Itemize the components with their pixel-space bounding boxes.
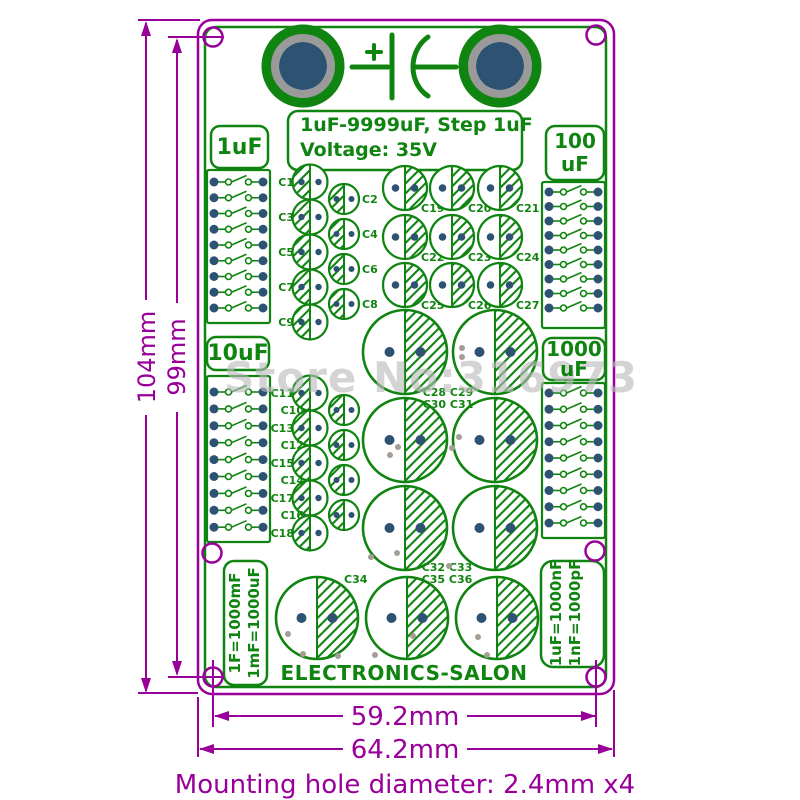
capacitor-pad xyxy=(349,442,355,448)
dim-width-outer: 64.2mm xyxy=(351,735,460,765)
formula-left-line1: 1F=1000mF xyxy=(226,567,245,679)
switch-lever xyxy=(567,287,582,294)
capacitor-hatch xyxy=(495,486,537,570)
capacitor-pad xyxy=(475,523,485,533)
formula-right-line2: 1nF=1000pF xyxy=(566,560,585,667)
aux-pad xyxy=(335,653,341,659)
capacitor-pad xyxy=(439,233,447,241)
switch-lever xyxy=(232,254,247,261)
capacitor-pad xyxy=(387,613,397,623)
capacitor-pad xyxy=(349,231,355,237)
switch-pad xyxy=(545,486,554,495)
capacitor-pad xyxy=(416,523,426,533)
capacitor-pad xyxy=(349,512,355,518)
switch-contact xyxy=(226,274,232,280)
section-label-100uf-value: 100 xyxy=(554,130,596,153)
switch-contact xyxy=(226,457,232,463)
switch-contact xyxy=(561,305,567,311)
cap-label: C13 xyxy=(271,422,294,435)
capacitor-pad xyxy=(334,266,340,272)
switch-contact xyxy=(226,258,232,264)
capacitor-pad xyxy=(349,477,355,483)
switch-pad xyxy=(259,178,268,187)
capacitor-hatch xyxy=(495,398,537,482)
switch-contact xyxy=(561,247,567,253)
switch-pad xyxy=(545,304,554,313)
mounting-hole xyxy=(586,542,605,561)
switch-lever xyxy=(567,229,582,236)
switch-pad xyxy=(210,489,219,498)
aux-pad xyxy=(449,445,455,451)
switch-pad xyxy=(594,202,603,211)
switch-pad xyxy=(545,275,554,284)
switch-contact xyxy=(561,204,567,210)
capacitor-hatch xyxy=(405,486,447,570)
switch-lever xyxy=(232,504,247,511)
switch-lever xyxy=(232,419,247,426)
switch-contact xyxy=(226,423,232,429)
switch-contact xyxy=(226,242,232,248)
switch-pad xyxy=(594,421,603,430)
switch-contact xyxy=(561,406,567,412)
switch-pad xyxy=(545,405,554,414)
switch-contact xyxy=(226,406,232,412)
switch-contact xyxy=(246,440,252,446)
aux-pad xyxy=(446,563,452,569)
capacitor-pad xyxy=(315,179,321,185)
switch-contact xyxy=(581,423,587,429)
capacitor-pad xyxy=(315,530,321,536)
aux-pad xyxy=(410,633,416,639)
section-label-1000uf-value: 1000 xyxy=(546,339,602,359)
capacitor-pad xyxy=(298,530,304,536)
switch-pad xyxy=(259,225,268,234)
capacitor-pad xyxy=(418,613,428,623)
switch-lever xyxy=(567,215,582,222)
switch-contact xyxy=(561,423,567,429)
capacitor-pad xyxy=(392,281,400,289)
aux-pad xyxy=(394,550,400,556)
switch-contact xyxy=(226,440,232,446)
title-line1: 1uF-9999uF, Step 1uF xyxy=(300,114,533,136)
capacitor-pad xyxy=(458,184,466,192)
dim-width-inner: 59.2mm xyxy=(351,702,460,732)
switch-pad xyxy=(259,421,268,430)
switch-lever xyxy=(567,186,582,193)
switch-lever xyxy=(232,223,247,230)
mounting-hole xyxy=(587,26,606,45)
capacitor-pad xyxy=(298,425,304,431)
capacitor-pad xyxy=(349,196,355,202)
switch-pad xyxy=(210,523,219,532)
capacitor-pad xyxy=(334,231,340,237)
cap-label: C5 xyxy=(278,246,294,259)
capacitor-pad xyxy=(297,613,307,623)
switch-contact xyxy=(246,179,252,185)
mounting-hole-caption: Mounting hole diameter: 2.4mm x4 xyxy=(175,770,635,800)
capacitor-pad xyxy=(315,319,321,325)
switch-contact xyxy=(581,247,587,253)
cap-label: C17 xyxy=(271,492,294,505)
capacitor-pad xyxy=(385,435,395,445)
capacitor-pad xyxy=(349,266,355,272)
section-label-100uf-unit: uF xyxy=(561,153,589,176)
cap-label: C27 xyxy=(516,299,539,312)
switch-pad xyxy=(210,404,219,413)
switch-pad xyxy=(545,519,554,528)
switch-contact xyxy=(246,242,252,248)
capacitor-pad xyxy=(328,613,338,623)
switch-pad xyxy=(594,217,603,226)
capacitor-pad xyxy=(411,184,419,192)
switch-contact xyxy=(581,488,587,494)
switch-contact xyxy=(581,305,587,311)
capacitor-pad xyxy=(315,425,321,431)
capacitor-pad xyxy=(334,301,340,307)
switch-pad xyxy=(259,455,268,464)
switch-lever xyxy=(567,419,582,426)
capacitor-pad xyxy=(392,184,400,192)
capacitor-pad xyxy=(475,435,485,445)
aux-pad xyxy=(387,452,393,458)
switch-pad xyxy=(259,506,268,515)
switch-contact xyxy=(246,258,252,264)
switch-pad xyxy=(210,225,219,234)
cap-label: C21 xyxy=(516,202,539,215)
capacitor-pad xyxy=(349,301,355,307)
cap-label: C8 xyxy=(362,298,378,311)
aux-pad xyxy=(484,652,490,658)
capacitor-pad xyxy=(315,460,321,466)
switch-lever xyxy=(232,270,247,277)
cap-label: C6 xyxy=(362,263,378,276)
switch-pad xyxy=(594,405,603,414)
switch-lever xyxy=(567,500,582,507)
switch-contact xyxy=(226,289,232,295)
switch-lever xyxy=(232,402,247,409)
capacitor-pad xyxy=(477,613,487,623)
section-label-10uf: 10uF xyxy=(207,337,269,370)
switch-lever xyxy=(567,244,582,251)
switch-lever xyxy=(567,517,582,524)
capacitor-pad xyxy=(298,495,304,501)
switch-lever xyxy=(232,207,247,214)
switch-pad xyxy=(259,256,268,265)
switch-lever xyxy=(232,453,247,460)
switch-contact xyxy=(581,504,587,510)
aux-pad xyxy=(395,444,401,450)
switch-contact xyxy=(246,211,252,217)
switch-pad xyxy=(210,421,219,430)
capacitor-pad xyxy=(439,184,447,192)
switch-pad xyxy=(210,506,219,515)
switch-pad xyxy=(210,209,219,218)
switch-lever xyxy=(232,286,247,293)
aux-pad xyxy=(475,634,481,640)
switch-pad xyxy=(259,404,268,413)
capacitor-pad xyxy=(334,477,340,483)
switch-lever xyxy=(232,470,247,477)
cap-label: C24 xyxy=(516,251,540,264)
switch-contact xyxy=(581,218,587,224)
switch-lever xyxy=(567,302,582,309)
capacitor-pad xyxy=(416,435,426,445)
switch-pad xyxy=(594,231,603,240)
capacitor-pad xyxy=(458,233,466,241)
section-label-100uf: 100 uF xyxy=(546,126,604,180)
switch-pad xyxy=(259,288,268,297)
switch-contact xyxy=(226,305,232,311)
switch-pad xyxy=(545,502,554,511)
switch-pad xyxy=(545,454,554,463)
section-label-1000uf-unit: uF xyxy=(560,359,588,379)
switch-contact xyxy=(581,520,587,526)
switch-contact xyxy=(561,504,567,510)
capacitor-pad xyxy=(298,319,304,325)
aux-pad xyxy=(456,434,462,440)
switch-pad xyxy=(594,470,603,479)
capacitor-pad xyxy=(334,512,340,518)
capacitor-pad xyxy=(439,281,447,289)
switch-contact xyxy=(581,406,587,412)
switch-contact xyxy=(581,189,587,195)
switch-contact xyxy=(581,233,587,239)
switch-contact xyxy=(561,276,567,282)
capacitor-pad xyxy=(298,460,304,466)
switch-lever xyxy=(567,452,582,459)
switch-pad xyxy=(594,304,603,313)
switch-pad xyxy=(259,209,268,218)
switch-contact xyxy=(246,474,252,480)
switch-pad xyxy=(259,241,268,250)
capacitor-pad xyxy=(334,407,340,413)
switch-contact xyxy=(561,520,567,526)
capacitor-pad xyxy=(458,281,466,289)
capacitor-pad xyxy=(298,249,304,255)
switch-contact xyxy=(581,204,587,210)
capacitor-pad xyxy=(506,233,514,241)
brand-text: ELECTRONICS-SALON xyxy=(281,661,528,685)
switch-pad xyxy=(594,275,603,284)
cap-label: C7 xyxy=(278,281,294,294)
switch-pad xyxy=(259,272,268,281)
switch-pad xyxy=(545,437,554,446)
switch-lever xyxy=(567,403,582,410)
switch-contact xyxy=(246,507,252,513)
switch-pad xyxy=(545,188,554,197)
cap-label: C15 xyxy=(271,457,294,470)
switch-pad xyxy=(210,438,219,447)
switch-contact xyxy=(226,211,232,217)
switch-lever xyxy=(232,176,247,183)
formula-right-line1: 1uF=1000nF xyxy=(547,560,566,667)
switch-pad xyxy=(210,241,219,250)
title-line2: Voltage: 35V xyxy=(300,139,437,161)
switch-contact xyxy=(561,455,567,461)
aux-pad xyxy=(285,631,291,637)
cap-label: C2 xyxy=(362,193,378,206)
cap-label-group: C34 xyxy=(344,573,368,586)
product-image: C1C2C3C4C5C6C7C8C9C11C10C13C12C15C14C17C… xyxy=(0,0,800,800)
switch-contact xyxy=(226,195,232,201)
switch-contact xyxy=(561,262,567,268)
switch-contact xyxy=(246,406,252,412)
switch-pad xyxy=(210,178,219,187)
capacitor-pad xyxy=(506,435,516,445)
section-label-1000uf: 1000 uF xyxy=(543,338,605,380)
capacitor-pad xyxy=(298,179,304,185)
capacitor-pad xyxy=(298,284,304,290)
capacitor-pad xyxy=(385,523,395,533)
capacitor-pad xyxy=(349,407,355,413)
switch-pad xyxy=(594,289,603,298)
switch-contact xyxy=(226,179,232,185)
switch-lever xyxy=(232,436,247,443)
cap-label: C9 xyxy=(278,316,294,329)
switch-contact xyxy=(581,471,587,477)
switch-pad xyxy=(545,246,554,255)
switch-lever xyxy=(567,468,582,475)
switch-lever xyxy=(567,484,582,491)
capacitor-pad xyxy=(334,442,340,448)
switch-pad xyxy=(210,256,219,265)
switch-contact xyxy=(246,305,252,311)
switch-contact xyxy=(226,524,232,530)
switch-contact xyxy=(561,488,567,494)
switch-pad xyxy=(545,470,554,479)
cap-label: C4 xyxy=(362,228,378,241)
switch-contact xyxy=(561,439,567,445)
switch-pad xyxy=(545,421,554,430)
dim-height-outer: 104mm xyxy=(133,311,161,404)
aux-pad xyxy=(300,651,306,657)
switch-pad xyxy=(545,202,554,211)
switch-lever xyxy=(232,521,247,528)
switch-pad xyxy=(545,260,554,269)
capacitor-pad xyxy=(508,613,518,623)
switch-lever xyxy=(567,200,582,207)
capacitor-pad xyxy=(506,281,514,289)
switch-contact xyxy=(226,490,232,496)
switch-contact xyxy=(561,291,567,297)
switch-pad xyxy=(210,455,219,464)
switch-contact xyxy=(561,471,567,477)
capacitor-symbol-icon xyxy=(352,35,456,98)
cap-label: C1 xyxy=(278,176,294,189)
switch-pad xyxy=(210,272,219,281)
switch-contact xyxy=(581,262,587,268)
switch-lever xyxy=(232,487,247,494)
switch-pad xyxy=(594,437,603,446)
capacitor-pad xyxy=(298,214,304,220)
switch-lever xyxy=(232,239,247,246)
switch-pad xyxy=(259,489,268,498)
switch-pad xyxy=(210,288,219,297)
switch-lever xyxy=(232,191,247,198)
switch-contact xyxy=(581,455,587,461)
switch-lever xyxy=(232,302,247,309)
capacitor-pad xyxy=(506,184,514,192)
switch-contact xyxy=(246,423,252,429)
switch-pad xyxy=(259,523,268,532)
capacitor-pad xyxy=(315,214,321,220)
switch-contact xyxy=(581,439,587,445)
switch-contact xyxy=(226,226,232,232)
switch-contact xyxy=(246,490,252,496)
capacitor-pad xyxy=(315,249,321,255)
switch-lever xyxy=(567,273,582,280)
switch-pad xyxy=(210,193,219,202)
capacitor-pad xyxy=(315,284,321,290)
capacitor-pad xyxy=(392,233,400,241)
switch-pad xyxy=(545,231,554,240)
section-label-1uf: 1uF xyxy=(211,126,268,168)
switch-lever xyxy=(567,435,582,442)
switch-contact xyxy=(561,189,567,195)
terminal-right xyxy=(464,30,536,102)
cap-label-group: C35 C36 xyxy=(422,573,473,586)
aux-pad xyxy=(368,554,374,560)
aux-pad xyxy=(372,652,378,658)
capacitor-pad xyxy=(487,184,495,192)
capacitor-pad xyxy=(411,233,419,241)
switch-contact xyxy=(246,289,252,295)
switch-contact xyxy=(581,291,587,297)
switch-lever xyxy=(567,258,582,265)
terminal-left xyxy=(267,30,339,102)
switch-pad xyxy=(259,472,268,481)
switch-pad xyxy=(594,454,603,463)
switch-pad xyxy=(259,304,268,313)
capacitor-pad xyxy=(334,196,340,202)
aux-pad xyxy=(459,345,465,351)
switch-pad xyxy=(594,486,603,495)
dim-height-inner: 99mm xyxy=(163,318,191,395)
switch-contact xyxy=(226,507,232,513)
switch-contact xyxy=(246,195,252,201)
switch-pad xyxy=(259,193,268,202)
cap-label: C3 xyxy=(278,211,294,224)
switch-pad xyxy=(259,438,268,447)
switch-contact xyxy=(246,226,252,232)
switch-contact xyxy=(561,218,567,224)
capacitor-pad xyxy=(315,495,321,501)
switch-contact xyxy=(246,524,252,530)
formula-left: 1F=1000mF 1mF=1000uF xyxy=(226,567,264,679)
formula-right: 1uF=1000nF 1nF=1000pF xyxy=(547,560,585,667)
switch-contact xyxy=(246,274,252,280)
capacitor-pad xyxy=(506,523,516,533)
switch-pad xyxy=(594,246,603,255)
capacitor-pad xyxy=(487,233,495,241)
capacitor-pad xyxy=(411,281,419,289)
switch-pad xyxy=(210,388,219,397)
switch-pad xyxy=(594,502,603,511)
capacitor-pad xyxy=(487,281,495,289)
switch-pad xyxy=(545,289,554,298)
switch-pad xyxy=(210,304,219,313)
switch-contact xyxy=(581,276,587,282)
switch-pad xyxy=(545,217,554,226)
switch-pad xyxy=(210,472,219,481)
switch-contact xyxy=(226,474,232,480)
formula-left-line2: 1mF=1000uF xyxy=(245,567,264,679)
switch-pad xyxy=(594,260,603,269)
switch-contact xyxy=(561,233,567,239)
switch-pad xyxy=(594,188,603,197)
cap-label: C18 xyxy=(271,527,294,540)
switch-contact xyxy=(246,457,252,463)
